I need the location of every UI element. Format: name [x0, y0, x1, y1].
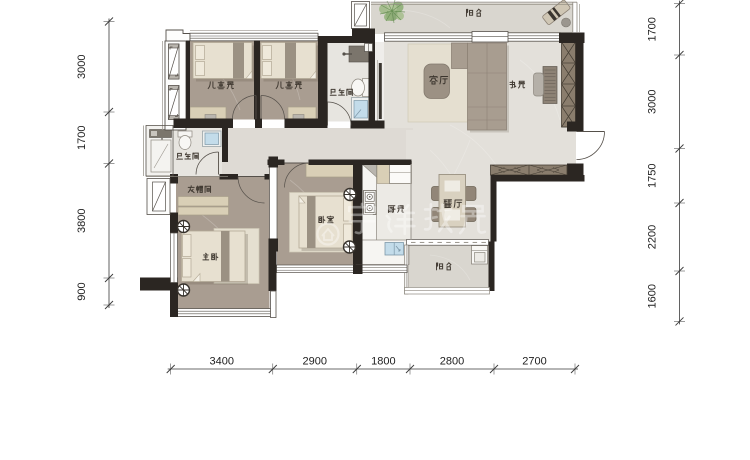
- svg-text:2900: 2900: [303, 356, 327, 368]
- svg-text:1600: 1600: [647, 284, 659, 308]
- svg-text:1800: 1800: [371, 356, 395, 368]
- svg-text:1700: 1700: [76, 126, 88, 150]
- svg-text:900: 900: [76, 282, 88, 300]
- svg-text:1750: 1750: [647, 164, 659, 188]
- svg-text:2200: 2200: [647, 225, 659, 249]
- svg-text:3000: 3000: [76, 55, 88, 79]
- svg-text:1700: 1700: [647, 17, 659, 41]
- svg-text:3800: 3800: [76, 209, 88, 233]
- svg-text:2800: 2800: [440, 356, 464, 368]
- svg-text:3000: 3000: [647, 90, 659, 114]
- svg-text:2700: 2700: [522, 356, 546, 368]
- svg-text:3400: 3400: [210, 356, 234, 368]
